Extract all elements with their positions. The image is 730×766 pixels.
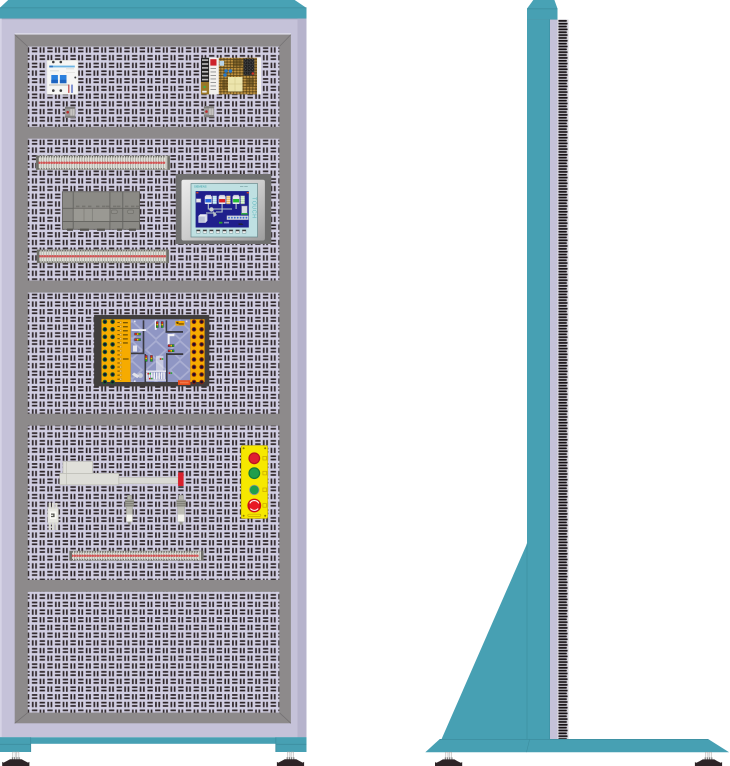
svg-text:SIEMENS: SIEMENS bbox=[194, 185, 207, 189]
svg-text:TOUCH: TOUCH bbox=[251, 197, 257, 219]
